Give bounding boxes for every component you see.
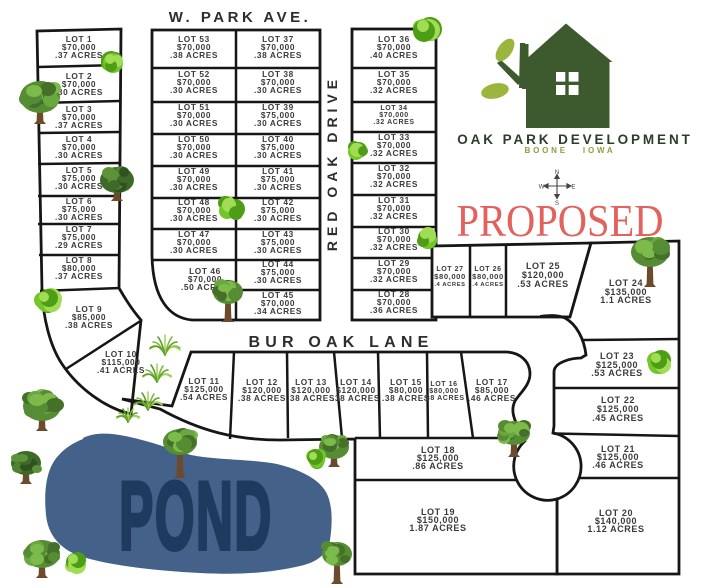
- svg-text:.30 ACRES: .30 ACRES: [170, 213, 218, 223]
- svg-text:.32 ACRES: .32 ACRES: [370, 274, 418, 284]
- svg-text:.38 ACRES: .38 ACRES: [238, 393, 286, 403]
- svg-text:LOT 34: LOT 34: [380, 105, 407, 112]
- svg-text:PROPOSED: PROPOSED: [456, 197, 663, 246]
- svg-text:W: W: [539, 184, 545, 191]
- svg-text:.37 ACRES: .37 ACRES: [55, 50, 103, 60]
- svg-text:E: E: [571, 184, 575, 191]
- svg-text:$80,000: $80,000: [434, 272, 466, 281]
- svg-text:.86 ACRES: .86 ACRES: [412, 461, 464, 471]
- svg-text:BUR OAK LANE: BUR OAK LANE: [248, 334, 433, 351]
- svg-text:$70,000: $70,000: [379, 112, 409, 119]
- svg-text:.37 ACRES: .37 ACRES: [55, 120, 103, 130]
- svg-text:BOONE IOWA: BOONE IOWA: [525, 146, 616, 155]
- svg-text:.45 ACRES: .45 ACRES: [592, 413, 644, 423]
- svg-text:1.87 ACRES: 1.87 ACRES: [409, 523, 466, 533]
- svg-text:.38 ACRES: .38 ACRES: [65, 320, 113, 330]
- svg-text:.30 ACRES: .30 ACRES: [55, 212, 103, 222]
- svg-text:.30 ACRES: .30 ACRES: [55, 181, 103, 191]
- svg-text:.38 ACRES: .38 ACRES: [170, 50, 218, 60]
- svg-text:.53 ACRES: .53 ACRES: [517, 279, 569, 289]
- svg-text:.32 ACRES: .32 ACRES: [370, 242, 418, 252]
- svg-text:.4 ACRES: .4 ACRES: [434, 282, 465, 288]
- svg-text:.29 ACRES: .29 ACRES: [55, 240, 103, 250]
- svg-text:.38 ACRES: .38 ACRES: [423, 395, 464, 402]
- svg-text:.30 ACRES: .30 ACRES: [254, 118, 302, 128]
- svg-text:.30 ACRES: .30 ACRES: [254, 182, 302, 192]
- svg-text:W. PARK AVE.: W. PARK AVE.: [169, 9, 312, 26]
- svg-text:.41 ACRES: .41 ACRES: [97, 365, 145, 375]
- svg-text:1.1 ACRES: 1.1 ACRES: [600, 295, 652, 305]
- svg-text:.30 ACRES: .30 ACRES: [254, 245, 302, 255]
- svg-text:.30 ACRES: .30 ACRES: [254, 85, 302, 95]
- svg-text:.30 ACRES: .30 ACRES: [170, 182, 218, 192]
- svg-text:.53 ACRES: .53 ACRES: [591, 368, 643, 378]
- svg-text:.32 ACRES: .32 ACRES: [370, 179, 418, 189]
- svg-text:.32 ACRES: .32 ACRES: [370, 148, 418, 158]
- svg-text:.30 ACRES: .30 ACRES: [55, 150, 103, 160]
- svg-text:.4 ACRES: .4 ACRES: [472, 282, 503, 288]
- svg-text:LOT 16: LOT 16: [430, 381, 457, 388]
- svg-text:.30 ACRES: .30 ACRES: [170, 245, 218, 255]
- svg-text:.46 ACRES: .46 ACRES: [468, 393, 516, 403]
- svg-text:.30 ACRES: .30 ACRES: [254, 275, 302, 285]
- svg-text:.38 ACRES: .38 ACRES: [332, 393, 380, 403]
- svg-text:.30 ACRES: .30 ACRES: [254, 150, 302, 160]
- svg-text:.32 ACRES: .32 ACRES: [370, 211, 418, 221]
- svg-text:.32 ACRES: .32 ACRES: [373, 119, 414, 126]
- svg-text:.30 ACRES: .30 ACRES: [55, 87, 103, 97]
- svg-text:N: N: [555, 169, 559, 176]
- svg-text:$80,000: $80,000: [472, 272, 504, 281]
- svg-text:.32 ACRES: .32 ACRES: [370, 85, 418, 95]
- svg-text:.30 ACRES: .30 ACRES: [170, 118, 218, 128]
- svg-text:.38 ACRES: .38 ACRES: [287, 393, 335, 403]
- svg-text:.40 ACRES: .40 ACRES: [370, 50, 418, 60]
- svg-text:.34 ACRES: .34 ACRES: [254, 306, 302, 316]
- svg-text:.46 ACRES: .46 ACRES: [592, 460, 644, 470]
- svg-text:.38 ACRES: .38 ACRES: [254, 50, 302, 60]
- svg-text:POND: POND: [119, 463, 272, 571]
- svg-text:OAK PARK DEVELOPMENT: OAK PARK DEVELOPMENT: [457, 132, 693, 147]
- svg-text:$80,000: $80,000: [429, 388, 459, 395]
- svg-text:.37 ACRES: .37 ACRES: [55, 271, 103, 281]
- svg-text:1.12 ACRES: 1.12 ACRES: [587, 524, 644, 534]
- svg-text:RED OAK DRIVE: RED OAK DRIVE: [324, 75, 340, 251]
- svg-text:.30 ACRES: .30 ACRES: [170, 150, 218, 160]
- svg-text:.30 ACRES: .30 ACRES: [170, 85, 218, 95]
- svg-text:.30 ACRES: .30 ACRES: [254, 213, 302, 223]
- svg-text:.36 ACRES: .36 ACRES: [370, 305, 418, 315]
- svg-text:.54 ACRES: .54 ACRES: [180, 392, 228, 402]
